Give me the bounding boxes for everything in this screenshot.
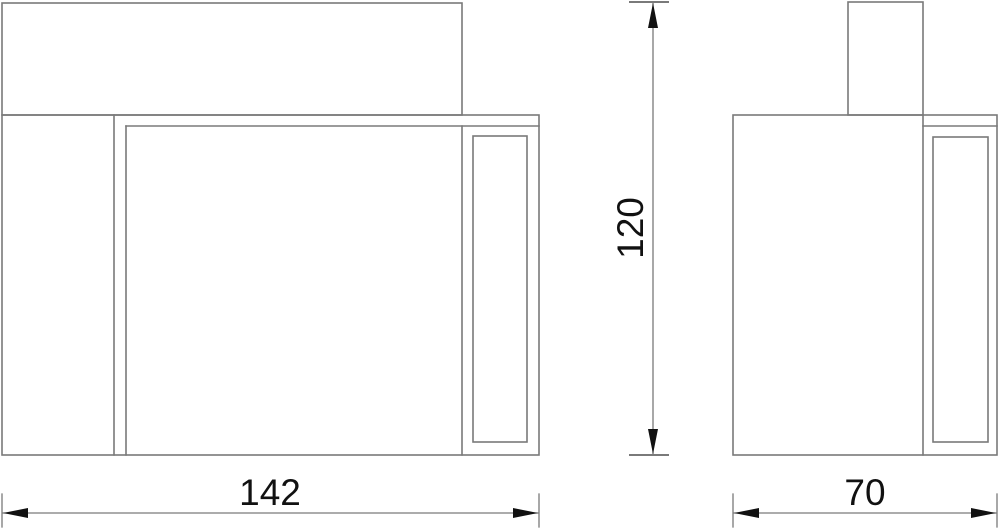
side-view-slot-frame bbox=[933, 137, 988, 442]
dim-width-label: 142 bbox=[239, 472, 301, 513]
dim-height-label: 120 bbox=[610, 197, 651, 259]
dimension-arrows bbox=[3, 3, 996, 518]
dimension-labels: 142 70 120 bbox=[239, 197, 885, 513]
side-view-body-outline bbox=[733, 115, 997, 455]
dim-depth-arrow-right bbox=[971, 508, 996, 518]
dim-width-arrow-left bbox=[3, 508, 28, 518]
dim-depth-arrow-left bbox=[734, 508, 759, 518]
front-view-body-outline bbox=[2, 115, 539, 455]
side-view-top-tab bbox=[848, 2, 923, 115]
dim-height-arrow-bottom bbox=[648, 429, 658, 454]
front-view-slot-frame bbox=[473, 136, 527, 442]
front-view-back-panel bbox=[2, 3, 462, 115]
object-lines bbox=[2, 2, 997, 455]
dim-depth-label: 70 bbox=[844, 472, 885, 513]
technical-drawing: 142 70 120 bbox=[0, 0, 1000, 530]
dim-height-arrow-top bbox=[648, 3, 658, 28]
dim-width-arrow-right bbox=[513, 508, 538, 518]
technical-drawing-canvas: 142 70 120 bbox=[0, 0, 1000, 530]
